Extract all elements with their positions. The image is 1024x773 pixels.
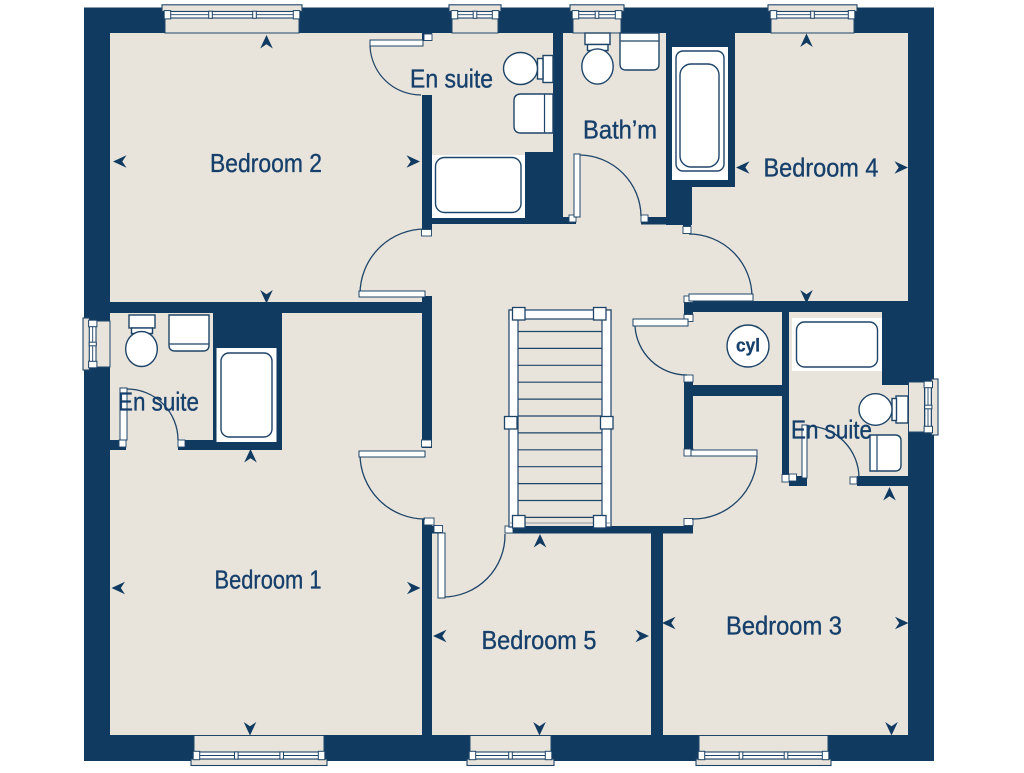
svg-text:En suite: En suite [118, 387, 199, 417]
svg-text:Bedroom 1: Bedroom 1 [215, 565, 322, 595]
svg-text:En suite: En suite [410, 64, 493, 94]
svg-text:En suite: En suite [791, 415, 872, 445]
svg-text:cyl: cyl [736, 335, 760, 356]
svg-text:Bath’m: Bath’m [583, 115, 657, 145]
svg-text:Bedroom 5: Bedroom 5 [482, 625, 597, 655]
svg-text:Bedroom 4: Bedroom 4 [764, 153, 879, 183]
svg-text:Bedroom 3: Bedroom 3 [726, 611, 842, 641]
svg-text:Bedroom 2: Bedroom 2 [210, 148, 322, 178]
